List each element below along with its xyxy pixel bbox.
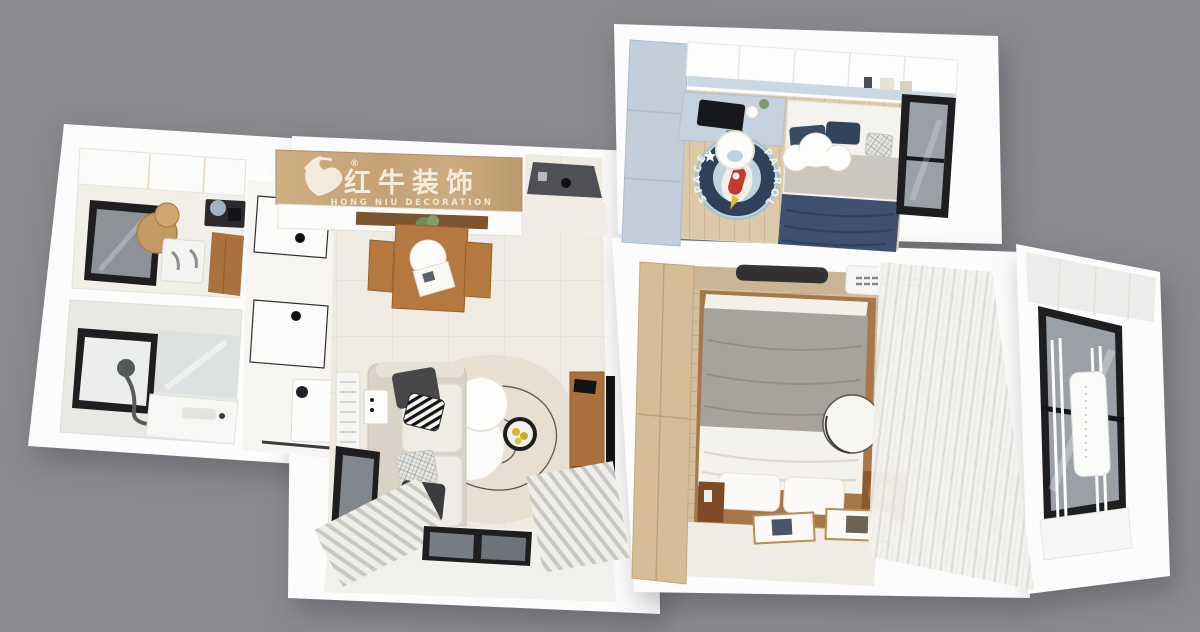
laptop [697,99,746,130]
sink-faucet [219,413,225,419]
desk-mug [746,106,758,118]
media-device [573,379,596,394]
rack-lift-unit [1069,371,1110,477]
pan [228,208,241,221]
pillow-checked [865,133,893,158]
balcony-window-glass [481,535,526,561]
bed-pillow [717,472,781,511]
kids-chair-hole [727,150,743,162]
cutting-board-small [155,203,179,227]
floorplan-render: ® 红牛装饰 HONG NIU DECORATION [0,0,1200,632]
sink-basin [182,407,217,420]
dining-chair-right [464,242,492,298]
fruit [520,432,528,440]
bathroom-window-glass [79,337,151,406]
pot [210,200,226,216]
brand-banner: ® 红牛装饰 HONG NIU DECORATION [276,150,522,212]
plant-leaves-icon [427,215,439,227]
brand-name-cn: 红牛装饰 [344,167,480,199]
entry-floor [522,196,608,236]
balcony-window-glass [429,532,474,559]
bathroom [60,300,242,444]
balcony-curtain-right [526,461,630,573]
sphere-lamp [823,395,881,453]
nightstand-phone [704,490,712,502]
control-dot [370,408,374,412]
art-print [846,516,869,534]
master-bedroom [632,258,1034,590]
desk-plant-icon [759,99,769,109]
door-knob-2 [291,311,301,321]
door-knob-1 [295,233,305,243]
shower-head [117,359,135,377]
entry-door-knob [561,178,571,188]
wall-control-panel [364,390,388,424]
shelf-books [900,81,912,91]
kitchen [72,148,246,298]
fruit [512,428,520,436]
shelf-books [864,77,872,88]
kids-bed [778,100,904,252]
fruit [515,438,522,445]
rocket-window [733,173,740,180]
dining-chair-left [368,240,394,292]
entry-door-lock [538,172,547,181]
floorplan-svg: ® 红牛装饰 HONG NIU DECORATION [0,0,1200,632]
art-print [772,519,793,536]
vanity-counter [146,394,238,444]
kitchen-sink [161,239,206,284]
control-dot [370,398,374,402]
shelf-books [880,78,894,89]
ceiling-light-bar [736,264,829,283]
kids-wardrobe [622,40,688,246]
door-leaf-2 [250,300,328,368]
washer-knob [296,386,308,398]
